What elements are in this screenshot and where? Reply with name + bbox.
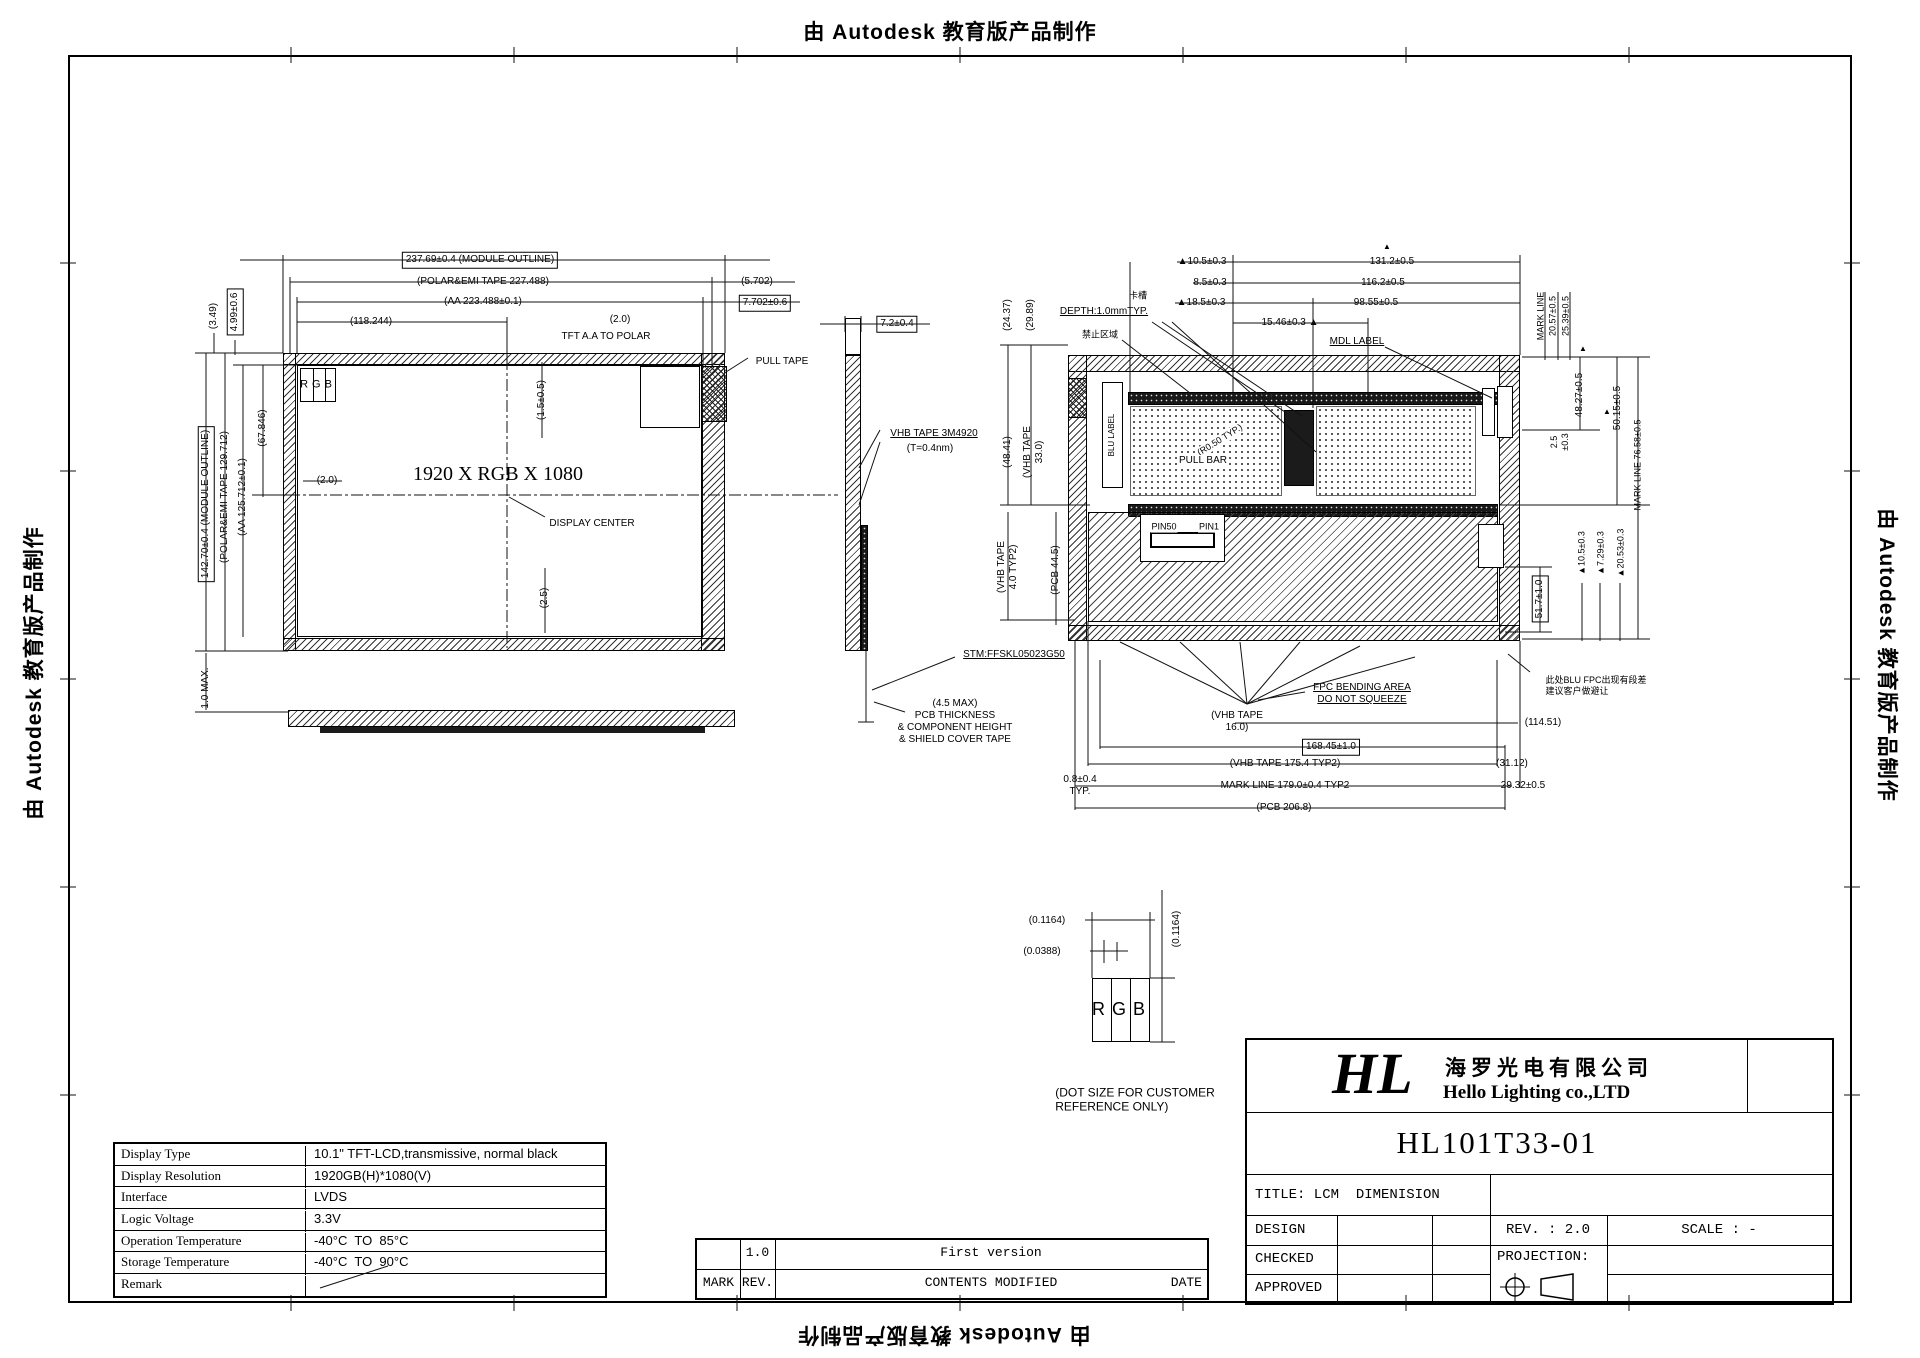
spec-value: -40°C TO 85°C (305, 1233, 597, 1254)
rev-description: First version (775, 1245, 1207, 1260)
label-pin50: PIN50 (1150, 522, 1177, 533)
dim-517: 51.7±1.0 (1532, 576, 1549, 623)
dim-pcb-2068: (PCB 206.8) (1255, 802, 1312, 814)
label-keepout-cn: 禁止区域 (1081, 330, 1119, 341)
dim-16845: 168.45±1.0 (1302, 739, 1360, 756)
back-view-center-block (1284, 410, 1314, 486)
label-pull-bar: PULL BAR (1178, 455, 1228, 467)
table-row: Display Type 10.1" TFT-LCD,transmissive,… (115, 1144, 605, 1166)
note-tft-aa-to-polar: TFT A.A TO POLAR (562, 331, 651, 343)
note-fpc-bending: FPC BENDING AREA DO NOT SQUEEZE (1312, 682, 1412, 706)
back-view-mdl-label-box2 (1497, 386, 1513, 438)
spec-key: Interface (121, 1189, 167, 1205)
label-mdl-label: MDL LABEL (1329, 336, 1386, 348)
spec-key: Logic Voltage (121, 1211, 194, 1227)
drawing-title: TITLE: LCM DIMENISION (1255, 1187, 1440, 1203)
dim-08-typ: 0.8±0.4 TYP. (1062, 774, 1097, 798)
dim-2989: (29.89) (1025, 298, 1037, 332)
spec-value: 10.1" TFT-LCD,transmissive, normal black (305, 1146, 597, 1167)
rev-header-mark: MARK (697, 1275, 740, 1290)
label-vhb-tape-thickness: (T=0.4nm) (906, 443, 954, 455)
caption-dot-size: (DOT SIZE FOR CUSTOMER REFERENCE ONLY) (1055, 1086, 1215, 1115)
dim-5702: (5.702) (740, 276, 774, 288)
spec-table: Display Type 10.1" TFT-LCD,transmissive,… (113, 1142, 607, 1298)
autodesk-banner-bottom: 由 Autodesk 教育版产品制作 (797, 1321, 1090, 1351)
back-view-connector-slot (1150, 532, 1215, 548)
spec-key: Display Type (121, 1146, 190, 1162)
dim-185: ▲18.5±0.3 (1176, 297, 1227, 309)
note-pcb-thickness: (4.5 MAX) PCB THICKNESS & COMPONENT HEIG… (898, 698, 1013, 746)
label-rgb-pixel: RGB (300, 378, 336, 391)
label-pin1: PIN1 (1198, 522, 1220, 533)
spec-value: 3.3V (305, 1211, 597, 1232)
note-blu-fpc-cn: 此处BLU FPC出现有段差 建议客户做避让 (1544, 675, 1647, 697)
projection-label: PROJECTION: (1497, 1249, 1589, 1265)
model-number: HL101T33-01 (1396, 1125, 1597, 1161)
title-block: HL 海罗光电有限公司 Hello Lighting co.,LTD HL101… (1245, 1038, 1834, 1305)
design-label: DESIGN (1255, 1222, 1305, 1238)
dim-85: 8.5±0.3 (1192, 277, 1227, 289)
dim-1546: 15.46±0.3 ▲ (1260, 317, 1319, 329)
side-view-body (845, 355, 861, 651)
dim-499: 4.99±0.6 (227, 289, 244, 336)
checked-label: CHECKED (1255, 1251, 1314, 1267)
table-row: Remark (115, 1274, 605, 1296)
dim-active-area-height: (AA 125.712±0.1) (237, 457, 249, 537)
approved-label: APPROVED (1255, 1280, 1322, 1296)
front-view-corner-notch (640, 366, 700, 428)
dim-module-width: 237.69±0.4 (MODULE OUTLINE) (402, 252, 558, 269)
dim-105-right: ▲10.5±0.3 (1577, 530, 1588, 576)
spec-value: -40°C TO 90°C (305, 1254, 597, 1275)
spec-key: Display Resolution (121, 1168, 221, 1184)
dim-dot-width: (0.1164) (1028, 915, 1067, 927)
dim-1312: 131.2±0.5 (1369, 256, 1415, 268)
table-row: Operation Temperature -40°C TO 85°C (115, 1231, 605, 1253)
dim-67846: (67.846) (257, 408, 269, 447)
label-blu-label: BLU LABEL (1107, 414, 1117, 457)
front-view-bottom-strip (288, 710, 735, 727)
dim-2057: 20.57±0.5 (1548, 295, 1559, 337)
dim-module-height: 142.70±0.4 (MODULE OUTLINE) (198, 426, 215, 582)
company-name-cn: 海罗光电有限公司 (1445, 1052, 1653, 1082)
table-row: Storage Temperature -40°C TO 90°C (115, 1252, 605, 1274)
dim-tft-gap: (2.0) (609, 314, 632, 326)
side-view-tape-strip (861, 525, 868, 651)
back-view-component (1478, 524, 1504, 568)
dim-vhb-16: (VHB TAPE 16.0) (1210, 710, 1264, 734)
dim-1-0-max: 1.0 MAX. (200, 666, 212, 709)
rev-value: REV. : 2.0 (1506, 1222, 1590, 1238)
dim-vhb-40: (VHB TAPE 4.0 TYP2) (996, 540, 1020, 594)
dim-vhb-33: (VHB TAPE 33.0) (1022, 425, 1046, 479)
dim-2539: 25.39±0.5 (1561, 295, 1572, 337)
dim-5015: 50.15±0.5 (1612, 385, 1624, 431)
side-view-top-segment (845, 318, 861, 355)
label-pull-tape: PULL TAPE (756, 356, 809, 368)
front-view-top-bezel-hatch (283, 353, 725, 365)
label-depth: DEPTH:1.0mmTYP. (1059, 306, 1149, 318)
label-vhb-tape: VHB TAPE 3M4920 (889, 428, 978, 440)
table-row: Interface LVDS (115, 1187, 605, 1209)
spec-value: 1920GB(H)*1080(V) (305, 1168, 597, 1189)
dim-2932: 29.32±0.5 (1500, 780, 1546, 792)
spec-key: Operation Temperature (121, 1233, 242, 1249)
back-view-vhb-bar-top (1128, 392, 1498, 405)
dim-11451: (114.51) (1524, 717, 1563, 729)
dim-729: ▲7.29±0.3 (1596, 530, 1607, 576)
dim-pcb-445: (PCB 44.5) (1050, 544, 1062, 595)
dim-polar-tape-width: (POLAR&EMI TAPE 227.488) (416, 276, 550, 288)
autodesk-banner-top: 由 Autodesk 教育版产品制作 (803, 16, 1096, 46)
table-row: Display Resolution 1920GB(H)*1080(V) (115, 1166, 605, 1188)
label-resolution: 1920 X RGB X 1080 (413, 462, 583, 486)
dim-thickness: 7.2±0.4 (876, 316, 917, 333)
front-view-bottom-strip-dark (320, 727, 705, 733)
autodesk-banner-right: 由 Autodesk 教育版产品制作 (1873, 508, 1903, 801)
rev-header-date: DATE (1132, 1275, 1202, 1290)
dim-mark-179: MARK LINE 179.0±0.4 TYP2 (1220, 780, 1351, 792)
dim-2437: (24.37) (1002, 298, 1014, 332)
spec-value: LVDS (305, 1189, 597, 1210)
dim-vhb-1754: (VHB TAPE 175.4 TYP2) (1229, 758, 1342, 770)
dim-4841: (48.41) (1002, 435, 1014, 469)
dim-left-gap: (2.0) (316, 475, 339, 487)
rev-triangle-marker: ▲ (1579, 344, 1587, 354)
company-name-en: Hello Lighting co.,LTD (1443, 1082, 1630, 1104)
rev-triangle-marker: ▲ (1603, 407, 1611, 417)
revision-table: 1.0 First version MARK REV. CONTENTS MOD… (695, 1238, 1209, 1300)
back-view-bottom-hatch (1068, 625, 1520, 641)
spec-value (305, 1276, 597, 1298)
autodesk-banner-left: 由 Autodesk 教育版产品制作 (18, 526, 48, 819)
back-view-mdl-label-box (1482, 388, 1495, 436)
label-stm-part: STM:FFSKL05023G50 (962, 649, 1066, 661)
projection-symbol-icon (1499, 1273, 1599, 1301)
dim-3112: (31.12) (1495, 758, 1529, 770)
dim-center-x: (118.244) (349, 316, 393, 328)
dim-1505: (1.5±0.5) (536, 379, 548, 421)
drawing-sheet: 由 Autodesk 教育版产品制作 由 Autodesk 教育版产品制作 由 … (0, 0, 1920, 1358)
rev-number: 1.0 (740, 1245, 775, 1260)
front-view-left-bezel-hatch (283, 353, 296, 651)
scale-value: SCALE : - (1681, 1222, 1757, 1238)
back-view-adhesive-right (1316, 406, 1476, 496)
dim-dot-height: (0.1164) (1171, 910, 1183, 949)
dim-dot-gap: (0.0388) (1022, 946, 1061, 958)
dim-25: (2.5) (539, 587, 551, 610)
dim-4827: 48.27±0.5 (1574, 372, 1586, 418)
dim-2053: ▲20.53±0.3 (1616, 528, 1627, 579)
spec-key: Remark (121, 1276, 162, 1292)
spec-key: Storage Temperature (121, 1254, 229, 1270)
label-slot-cn: 卡槽 (1128, 291, 1148, 302)
rev-header-rev: REV. (740, 1275, 775, 1290)
dim-9855: 98.55±0.5 (1353, 297, 1399, 309)
front-view-pull-tape-shape (701, 366, 727, 422)
label-display-center: DISPLAY CENTER (549, 518, 634, 530)
dim-105-left: ▲10.5±0.3 (1177, 256, 1228, 268)
back-view-top-hatch (1068, 355, 1520, 372)
dim-active-area-width: (AA 223.488±0.1) (443, 296, 523, 308)
dim-25-03: 2.5 ±0.3 (1549, 432, 1571, 451)
dim-349: (3.49) (208, 302, 220, 330)
dim-polar-tape-height: (POLAR&EMI TAPE 129.712) (219, 430, 231, 564)
dim-mark-7658: MARK LINE 76.58±0.5 (1633, 419, 1644, 512)
company-logo: HL (1332, 1040, 1413, 1107)
back-view-pull-tape (1068, 378, 1087, 418)
rev-triangle-marker: ▲ (1383, 242, 1391, 252)
dim-1162: 116.2±0.5 (1360, 277, 1406, 289)
label-mark-line-tr: MARK LINE (1536, 291, 1547, 342)
label-dot-rgb: RGB (1092, 999, 1152, 1021)
front-view-bottom-bezel-hatch (283, 638, 725, 651)
dim-7702: 7.702±0.6 (739, 295, 791, 312)
table-row: Logic Voltage 3.3V (115, 1209, 605, 1231)
